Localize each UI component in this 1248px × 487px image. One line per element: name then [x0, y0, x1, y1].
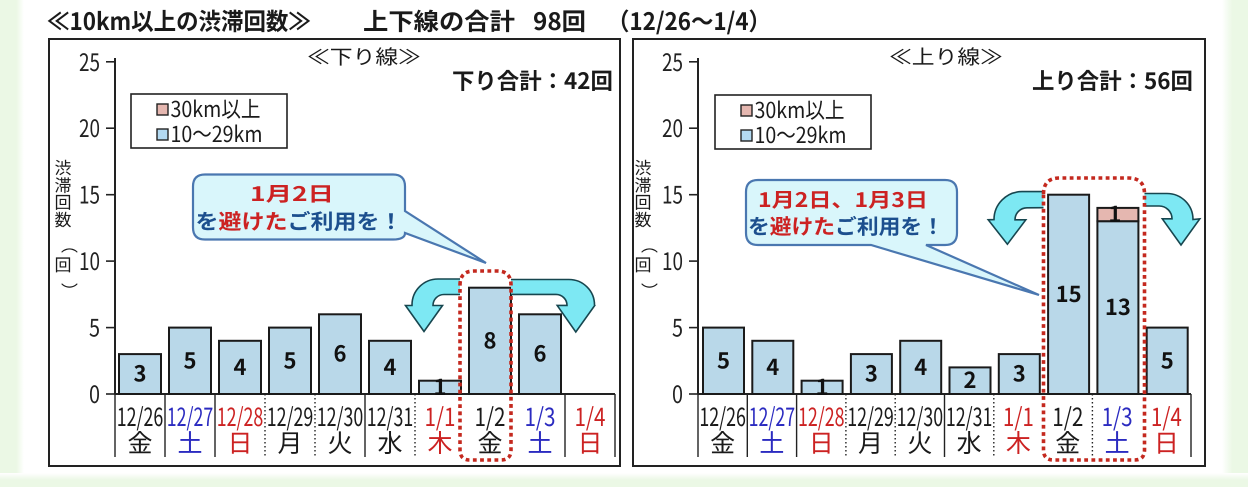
svg-text:日: 日	[809, 424, 834, 460]
svg-text:上り合計：56回: 上り合計：56回	[1032, 64, 1193, 96]
svg-text:2: 2	[964, 363, 977, 395]
svg-text:土: 土	[1105, 424, 1130, 460]
svg-text:0: 0	[89, 376, 100, 411]
svg-text:を避けたご利用を！: を避けたご利用を！	[196, 205, 403, 236]
svg-text:木: 木	[428, 424, 453, 460]
svg-text:5: 5	[717, 343, 730, 375]
svg-text:5: 5	[89, 309, 100, 344]
svg-text:8: 8	[484, 323, 497, 355]
svg-text:4: 4	[234, 350, 247, 382]
svg-text:木: 木	[1006, 424, 1031, 460]
svg-text:5: 5	[1161, 343, 1174, 375]
svg-text:日: 日	[1154, 424, 1179, 460]
svg-text:火: 火	[907, 424, 932, 460]
svg-text:5: 5	[184, 343, 197, 375]
svg-text:土: 土	[759, 424, 784, 460]
svg-text:を避けたご利用を！: を避けたご利用を！	[748, 210, 944, 240]
svg-text:20: 20	[79, 111, 100, 145]
svg-text:≪下り線≫: ≪下り線≫	[307, 42, 421, 71]
svg-text:5: 5	[672, 309, 683, 344]
svg-text:10～29km: 10～29km	[171, 117, 263, 149]
svg-text:（12/26～1/4）: （12/26～1/4）	[607, 2, 771, 37]
svg-text:）: ）	[638, 283, 663, 300]
svg-text:13: 13	[1105, 290, 1131, 322]
svg-text:0: 0	[672, 376, 683, 411]
svg-text:10～29km: 10～29km	[755, 118, 847, 150]
svg-text:土: 土	[528, 424, 553, 460]
svg-text:3: 3	[865, 357, 878, 389]
svg-text:1月2日、1月3日: 1月2日、1月3日	[758, 185, 928, 214]
svg-text:20: 20	[662, 111, 683, 145]
svg-text:水: 水	[957, 424, 982, 460]
svg-text:日: 日	[578, 424, 603, 460]
svg-text:火: 火	[328, 424, 353, 460]
svg-text:数: 数	[55, 206, 72, 231]
svg-text:水: 水	[378, 424, 403, 460]
svg-text:15: 15	[662, 177, 683, 211]
svg-text:25: 25	[662, 44, 683, 78]
svg-text:金: 金	[128, 424, 153, 460]
svg-text:≪上り線≫: ≪上り線≫	[889, 42, 1003, 71]
svg-text:4: 4	[766, 350, 779, 382]
svg-text:6: 6	[534, 337, 547, 369]
svg-text:上下線の合計: 上下線の合計	[363, 3, 515, 38]
svg-text:月: 月	[278, 424, 303, 460]
svg-text:3: 3	[1013, 357, 1026, 389]
svg-text:25: 25	[79, 44, 100, 78]
svg-text:3: 3	[134, 357, 147, 389]
svg-text:金: 金	[478, 424, 503, 460]
svg-text:下り合計：42回: 下り合計：42回	[452, 64, 613, 96]
svg-text:日: 日	[228, 424, 253, 460]
svg-text:4: 4	[384, 350, 397, 382]
svg-text:98回: 98回	[533, 2, 586, 37]
svg-text:≪10km以上の渋滞回数≫: ≪10km以上の渋滞回数≫	[47, 2, 311, 37]
svg-text:1: 1	[1108, 197, 1121, 229]
svg-text:1: 1	[816, 370, 829, 402]
svg-text:月: 月	[858, 424, 883, 460]
svg-text:金: 金	[710, 424, 735, 460]
svg-text:10: 10	[662, 243, 683, 277]
svg-text:土: 土	[178, 424, 203, 460]
svg-text:回: 回	[635, 251, 652, 276]
svg-text:数: 数	[635, 206, 652, 231]
svg-text:金: 金	[1055, 424, 1080, 460]
svg-text:5: 5	[284, 343, 297, 375]
svg-text:15: 15	[1056, 277, 1082, 309]
svg-text:1月2日: 1月2日	[250, 178, 334, 207]
svg-text:4: 4	[914, 350, 927, 382]
svg-text:）: ）	[58, 283, 83, 300]
svg-text:6: 6	[334, 337, 347, 369]
svg-text:回: 回	[55, 251, 72, 276]
svg-text:15: 15	[79, 177, 100, 211]
